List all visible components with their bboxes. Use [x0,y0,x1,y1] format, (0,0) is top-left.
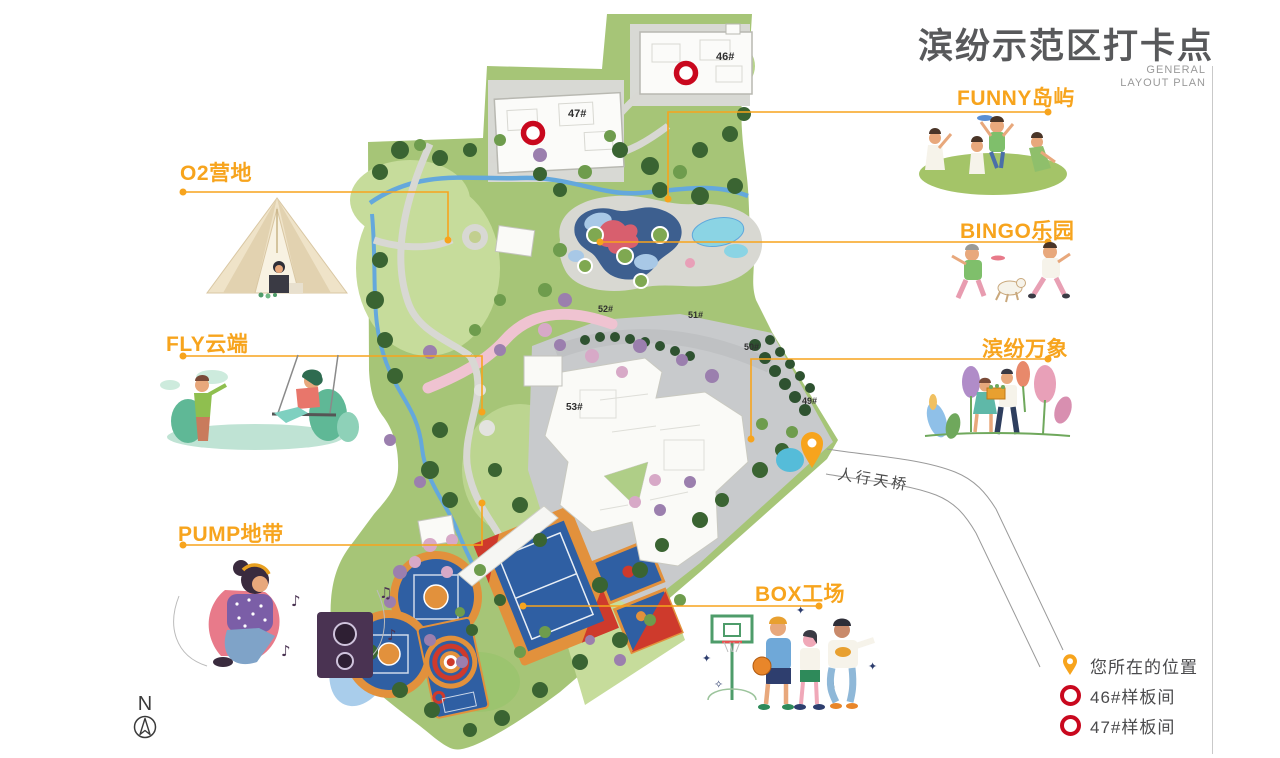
splash-playground [559,196,762,291]
red-ring-icon [1058,685,1082,706]
legend-row-location: 您所在的位置 [1058,650,1198,680]
pool-near-pin [776,448,804,472]
legend-row-46: 46#样板间 [1058,680,1198,710]
poi-label-fly: FLY云端 [166,328,248,358]
label-52: 52# [598,304,613,314]
wanxiang-illustration [923,361,1075,440]
legend-row-47: 47#样板间 [1058,710,1198,740]
tent-illustration [207,198,347,299]
compass-north-label: N [128,694,162,714]
subtitle-line-1: GENERAL [1000,64,1206,77]
poi-label-bingo: BINGO乐园 [960,215,1074,245]
legend-label-location: 您所在的位置 [1090,653,1198,678]
svg-text:✦: ✦ [868,660,877,673]
layout-plan-page: 46# 47# 52# 51# 50# 49# 53# [0,0,1280,758]
svg-text:✦: ✦ [702,652,711,665]
sample-room-ring-47 [524,124,543,143]
bingo-illustration [952,242,1070,302]
poi-label-box: BOX工场 [755,578,845,608]
funny-island-illustration [919,115,1067,195]
label-50: 50# [744,342,759,352]
page-title: 滨纷示范区打卡点 [880,18,1214,69]
building-46 [640,24,752,94]
poi-label-pump: PUMP地带 [178,518,284,548]
compass: N [128,694,162,745]
svg-text:♫: ♫ [379,584,392,602]
svg-text:♪: ♪ [291,592,301,610]
box-illustration: ✦✦✦✧ [702,604,877,710]
red-ring-icon [1058,715,1082,736]
site-map: 46# 47# 52# 51# 50# 49# 53# [0,0,1280,758]
label-49: 49# [802,396,817,406]
svg-text:♪: ♪ [387,626,397,644]
path-node-2 [474,384,486,396]
label-53: 53# [566,402,583,413]
svg-text:♪: ♪ [281,642,291,660]
svg-text:✧: ✧ [714,678,723,691]
swing-illustration [160,355,359,450]
compass-icon [132,714,158,740]
vertical-divider [1212,66,1213,754]
label-47: 47# [568,108,586,120]
legend-label-47: 47#样板间 [1090,713,1175,738]
path-node [479,420,495,436]
poi-label-funny: FUNNY岛屿 [957,82,1075,112]
legend-label-46: 46#样板间 [1090,683,1175,708]
location-pin-icon [1058,654,1082,676]
sample-room-ring-46 [677,64,696,83]
building-47 [494,93,624,173]
poi-label-wanxiang: 滨纷万象 [982,333,1068,363]
poi-label-o2: O2营地 [180,157,252,187]
label-46: 46# [716,51,734,63]
legend: 您所在的位置 46#样板间 47#样板间 [1058,650,1198,740]
plaza-green [469,231,481,243]
label-51: 51# [688,310,703,320]
